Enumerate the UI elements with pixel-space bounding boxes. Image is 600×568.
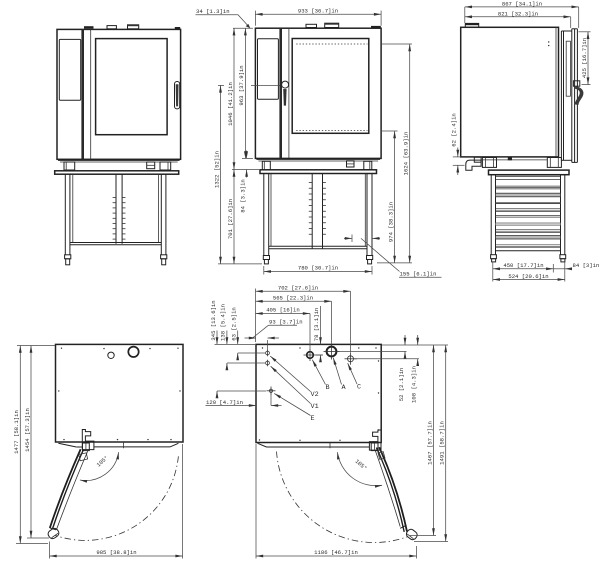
- svg-text:63 [2.5]in: 63 [2.5]in: [231, 307, 238, 341]
- svg-text:985 [38.8]in: 985 [38.8]in: [96, 549, 136, 556]
- svg-text:105°: 105°: [95, 454, 110, 468]
- svg-text:78 [3.1]in: 78 [3.1]in: [313, 308, 320, 342]
- svg-text:450 [17.7]in: 450 [17.7]in: [503, 262, 543, 269]
- svg-text:V2: V2: [311, 391, 319, 399]
- svg-text:155 [6.1]in: 155 [6.1]in: [400, 271, 437, 278]
- svg-text:1491 [58.7]in: 1491 [58.7]in: [439, 421, 446, 465]
- svg-text:E: E: [311, 415, 315, 423]
- svg-text:52 [2.1]in: 52 [2.1]in: [398, 368, 405, 402]
- svg-text:V1: V1: [311, 403, 319, 411]
- svg-text:B: B: [326, 384, 330, 392]
- svg-text:345 [13.6]in: 345 [13.6]in: [210, 300, 217, 340]
- svg-text:565 [22.3]in: 565 [22.3]in: [273, 295, 313, 302]
- svg-text:1322 [52]in: 1322 [52]in: [213, 151, 220, 188]
- svg-text:1046 [41.2]in: 1046 [41.2]in: [227, 82, 234, 126]
- svg-text:62 [2.4]in: 62 [2.4]in: [450, 113, 457, 147]
- svg-text:701 [27.6]in: 701 [27.6]in: [227, 199, 234, 239]
- svg-text:524 [20.6]in: 524 [20.6]in: [508, 273, 548, 280]
- svg-text:867 [34.1]in: 867 [34.1]in: [502, 0, 542, 7]
- svg-text:1467 [57.7]in: 1467 [57.7]in: [426, 421, 433, 465]
- svg-text:84 [3]in: 84 [3]in: [573, 262, 600, 269]
- svg-text:821 [32.3]in: 821 [32.3]in: [498, 10, 538, 17]
- svg-text:A: A: [342, 384, 347, 392]
- svg-text:1624 [63.9]in: 1624 [63.9]in: [403, 132, 410, 176]
- svg-text:C: C: [357, 384, 361, 392]
- svg-text:93 [3.7]in: 93 [3.7]in: [269, 319, 303, 326]
- svg-text:1477 [58.1]in: 1477 [58.1]in: [13, 410, 20, 454]
- svg-text:702 [27.6]in: 702 [27.6]in: [278, 285, 318, 292]
- svg-text:1454 [57.3]in: 1454 [57.3]in: [24, 408, 31, 452]
- svg-text:105°: 105°: [354, 458, 369, 472]
- svg-text:120 [4.7]in: 120 [4.7]in: [206, 399, 243, 406]
- svg-text:933 [36.7]in: 933 [36.7]in: [298, 8, 338, 15]
- svg-text:108 [4.3]in: 108 [4.3]in: [411, 366, 418, 403]
- svg-text:780 [30.7]in: 780 [30.7]in: [298, 265, 338, 272]
- svg-text:974 [38.3]in: 974 [38.3]in: [387, 202, 394, 242]
- svg-text:138 [5.4]in: 138 [5.4]in: [220, 304, 227, 341]
- svg-text:1186 [46.7]in: 1186 [46.7]in: [314, 549, 358, 556]
- svg-text:963 [37.9]in: 963 [37.9]in: [238, 65, 245, 105]
- svg-text:34 [1.3]in: 34 [1.3]in: [196, 8, 230, 15]
- svg-text:84 [3.3]in: 84 [3.3]in: [239, 179, 246, 213]
- svg-text:405 [16]in: 405 [16]in: [266, 307, 300, 314]
- svg-text:425 [16.7]in: 425 [16.7]in: [581, 38, 588, 78]
